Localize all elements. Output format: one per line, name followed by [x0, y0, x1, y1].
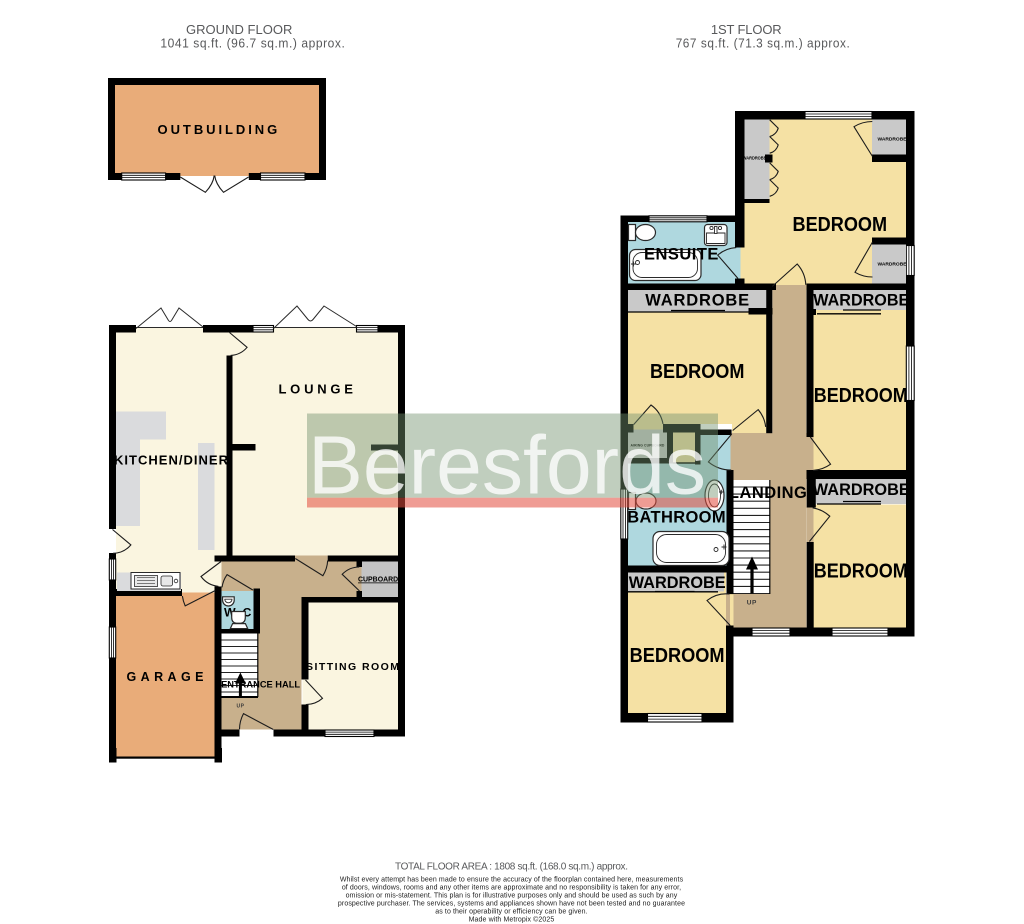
svg-text:Made with Metropix ©2025: Made with Metropix ©2025 [469, 916, 555, 924]
svg-text:BEDROOM: BEDROOM [814, 561, 908, 583]
svg-text:CUPBOARD: CUPBOARD [358, 575, 399, 584]
svg-text:BEDROOM: BEDROOM [650, 361, 745, 383]
svg-text:KITCHEN/DINER: KITCHEN/DINER [114, 453, 229, 468]
svg-text:omission or mis-statement. Thi: omission or mis-statement. This plan is … [346, 893, 678, 900]
svg-text:WARDROBE: WARDROBE [645, 291, 749, 309]
svg-text:UP: UP [237, 704, 245, 710]
svg-text:as to their operability or eff: as to their operability or efficiency ca… [435, 909, 587, 916]
svg-text:SITTING ROOM: SITTING ROOM [306, 661, 399, 673]
svg-text:BEDROOM: BEDROOM [814, 385, 908, 407]
svg-text:WARDROBE: WARDROBE [813, 481, 910, 499]
svg-text:Beresfords: Beresfords [308, 419, 706, 512]
svg-text:1041 sq.ft. (96.7 sq.m.) appro: 1041 sq.ft. (96.7 sq.m.) approx. [160, 36, 345, 51]
svg-text:Whilst every attempt has been: Whilst every attempt has been made to en… [340, 877, 684, 884]
svg-text:ENTRANCE HALL: ENTRANCE HALL [221, 680, 301, 690]
svg-text:WARDROBE: WARDROBE [878, 137, 907, 142]
svg-text:WARDROBE: WARDROBE [629, 574, 726, 592]
svg-text:WARDROBE: WARDROBE [813, 291, 909, 309]
svg-text:767 sq.ft. (71.3 sq.m.) approx: 767 sq.ft. (71.3 sq.m.) approx. [676, 36, 851, 51]
svg-text:BEDROOM: BEDROOM [793, 214, 888, 236]
svg-text:BEDROOM: BEDROOM [630, 645, 725, 667]
svg-text:WARDROBE: WARDROBE [743, 156, 767, 161]
svg-text:WARDROBE: WARDROBE [878, 262, 907, 267]
svg-text:ENSUITE: ENSUITE [644, 245, 719, 263]
svg-text:UP: UP [747, 600, 757, 607]
svg-text:prospective purchaser. The ser: prospective purchaser. The services, sys… [338, 901, 685, 908]
svg-text:TOTAL FLOOR AREA : 1808 sq.ft.: TOTAL FLOOR AREA : 1808 sq.ft. (168.0 sq… [395, 862, 628, 873]
svg-text:LANDING: LANDING [729, 484, 807, 502]
svg-text:of doors, windows, rooms and a: of doors, windows, rooms and any other i… [342, 885, 681, 892]
